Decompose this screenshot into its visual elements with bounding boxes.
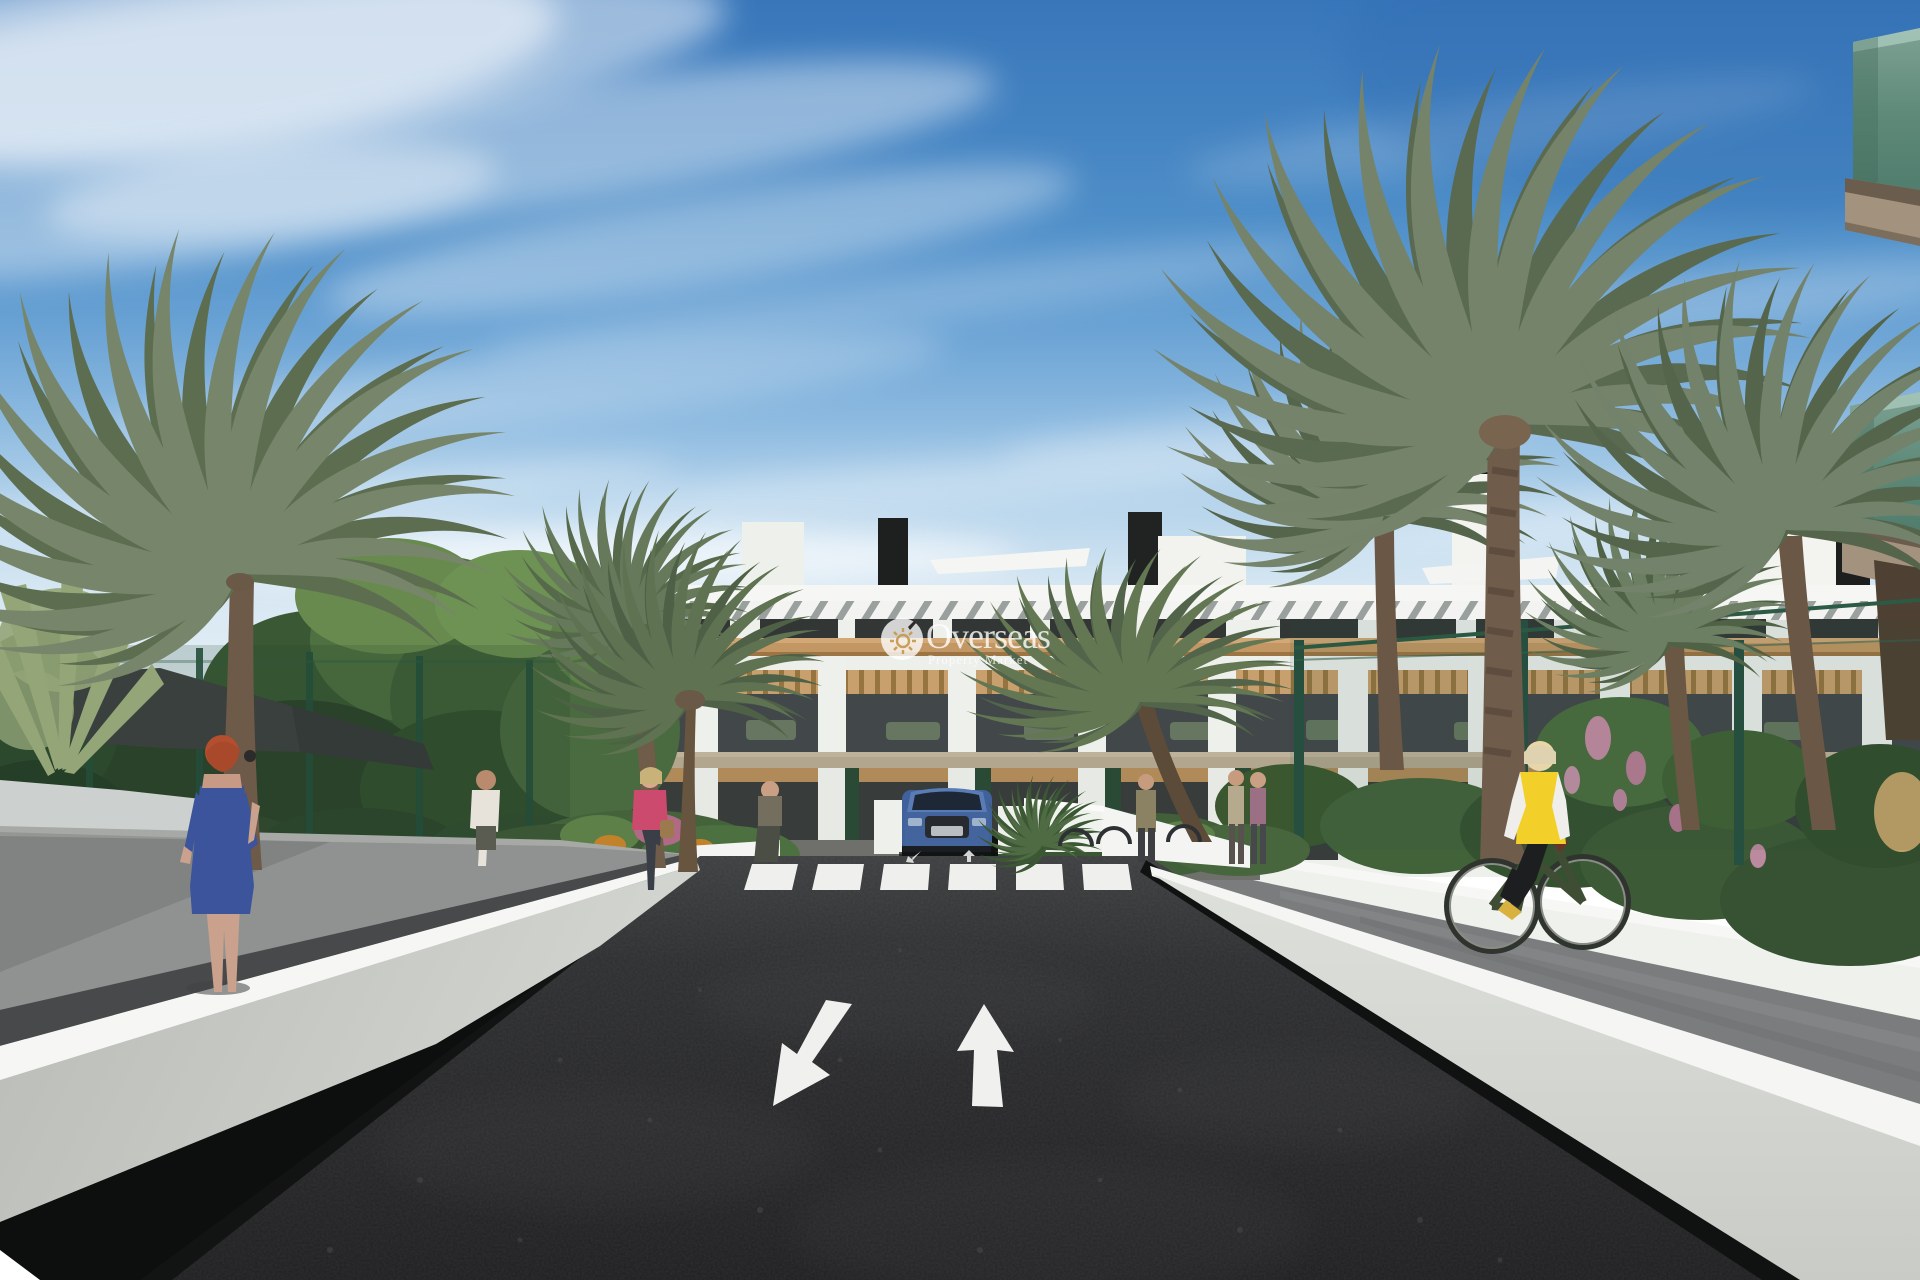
svg-text:Overseas: Overseas (926, 616, 1050, 656)
svg-text:Property Market: Property Market (928, 653, 1028, 667)
